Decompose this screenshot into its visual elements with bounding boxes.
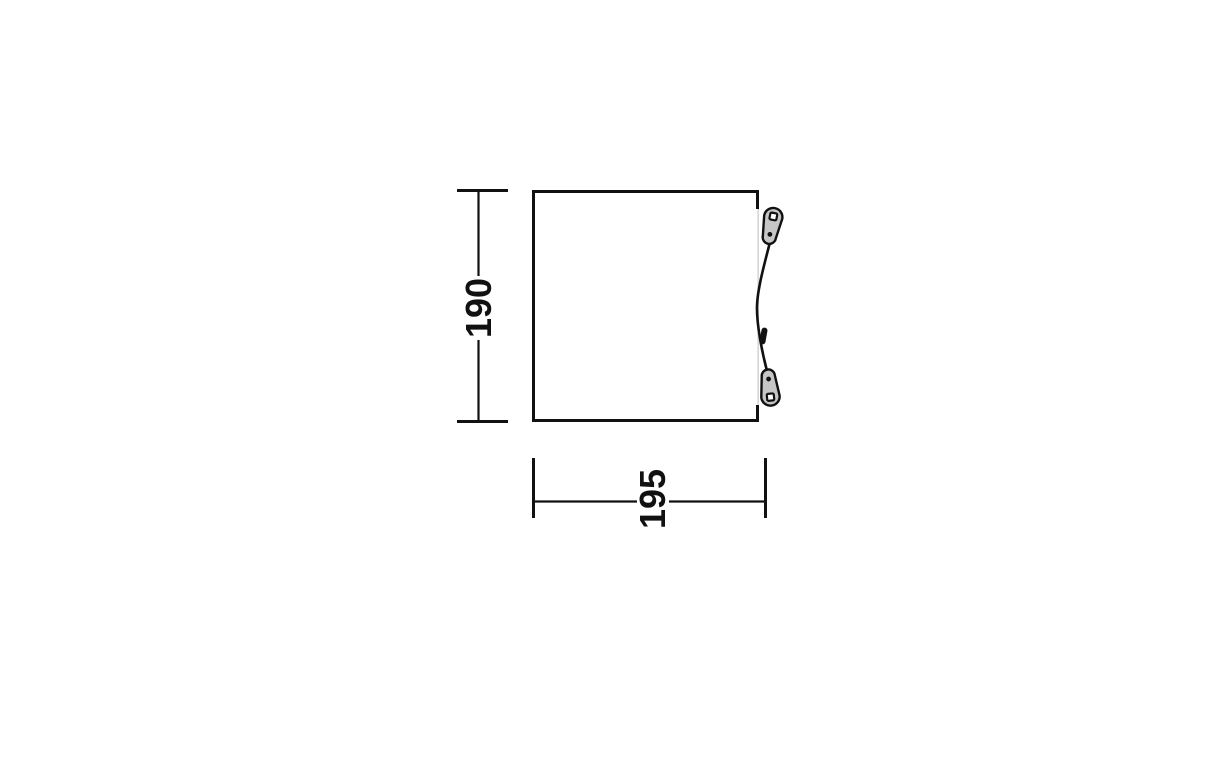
dimension-diagram: 190 195: [0, 0, 1230, 763]
guyline-peg-clip-top-icon: [759, 206, 784, 245]
diagram-canvas: [0, 0, 1230, 763]
guyline-peg-clip-bottom-icon: [758, 369, 780, 407]
height-dimension-label: 190: [463, 276, 495, 340]
width-dimension-label: 195: [637, 467, 669, 531]
floorplan-outline: [534, 192, 758, 421]
